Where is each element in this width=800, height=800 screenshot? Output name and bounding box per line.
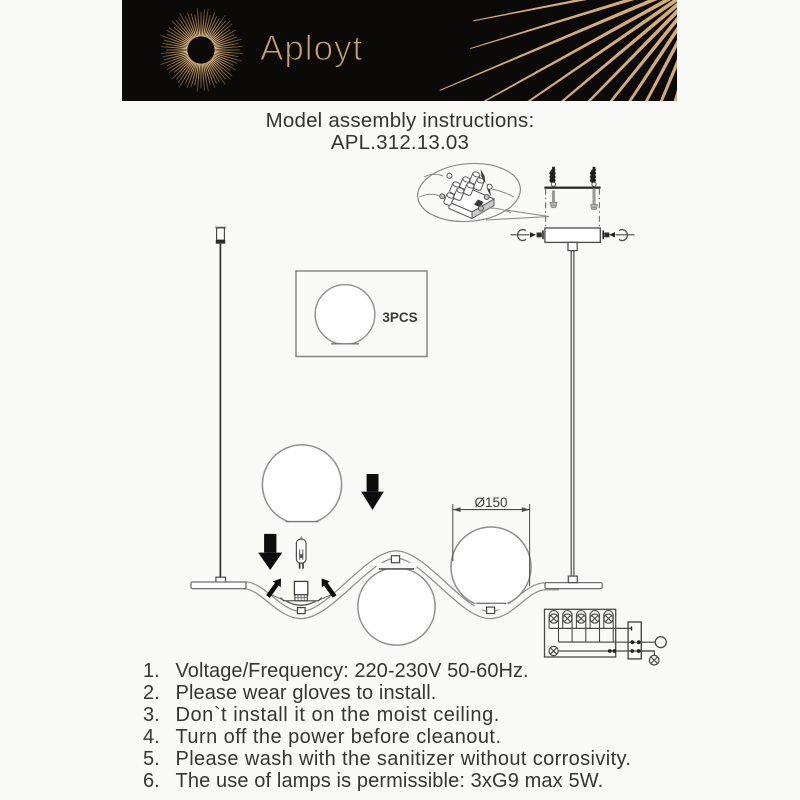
svg-text:3PCS: 3PCS xyxy=(382,310,417,325)
svg-text:Ø150: Ø150 xyxy=(474,495,507,510)
